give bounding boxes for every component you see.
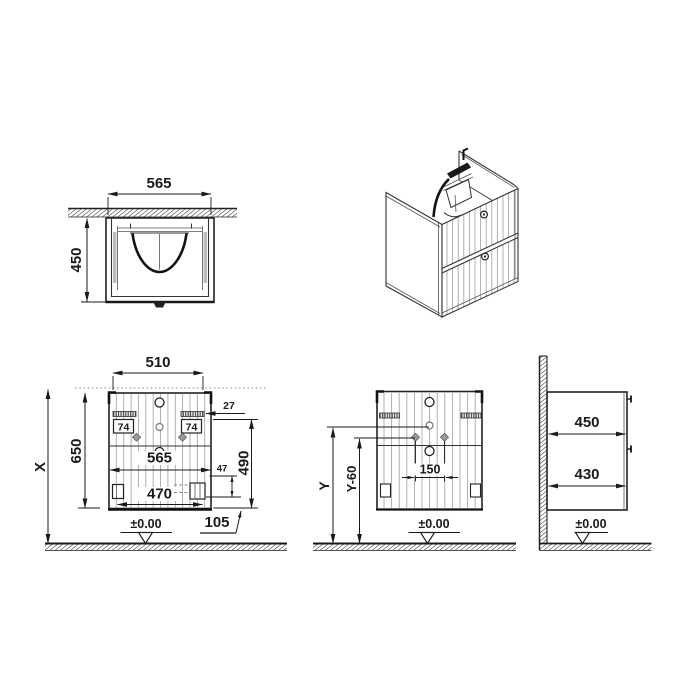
plan-view: 565 450 [68,175,237,308]
side-section-view: 450 430 ±0.00 [540,356,652,551]
drawer-slide-left [113,232,117,283]
datum-triangle-mount [421,533,435,544]
dim-cabinet-height: 650 [68,438,85,463]
dim-overall-width: 565 [147,450,172,467]
bracket-bottom-right-2 [471,484,481,497]
floor-hatch-mount [313,544,516,550]
dim-bottom-width: 470 [147,486,172,503]
fixing-hole-bottom-2 [425,447,434,456]
dim-depth-upper: 450 [574,414,599,431]
drain-mark [154,303,166,308]
bracket-bottom-left-2 [381,484,391,497]
mount-bracket-right-2 [461,413,481,418]
floor-hatch-front [45,544,287,550]
dim-bracket-offset: 27 [223,400,235,412]
dim-height-y60: Y-60 [344,466,359,493]
cabinet-plan-outline [106,218,214,302]
fixing-hole-mid-2 [426,422,433,429]
dim-bracket-height: 490 [236,450,253,475]
dim-total-height: X [32,462,49,472]
drawer-slide-right [204,232,208,283]
dim-hole-spacing: 150 [420,463,441,477]
mount-bracket-left-2 [380,413,400,418]
installation-heights-view: 150 Y Y-60 ±0.00 [313,392,516,551]
drain-bracket-right [190,483,205,499]
mount-bracket-left [113,412,136,417]
dim-plan-depth: 450 [68,247,85,272]
datum-level-front: ±0.00 [130,517,161,531]
bracket-bottom-left [113,485,124,499]
dim-bracket-right: 74 [186,422,198,434]
dim-drain-offset: 47 [217,464,228,475]
floor-hatch-side [540,544,652,551]
dim-depth-lower: 430 [574,466,599,483]
dim-top-width: 510 [145,354,170,371]
fixing-hole-mid [156,424,163,431]
dim-bracket-left: 74 [118,422,130,434]
drawing-svg: 565 450 [0,0,700,700]
vanity-technical-drawing: 565 450 [0,0,700,700]
fixing-hole-top-2 [425,398,434,407]
datum-level-mount: ±0.00 [418,517,449,531]
datum-level-side: ±0.00 [575,517,606,531]
datum-triangle-side [576,533,590,544]
wall-hatch-side [540,356,548,544]
isometric-view [386,149,518,318]
drain-pipe [434,179,450,217]
dim-height-y: Y [316,481,332,491]
wall-hatch [68,209,237,218]
fixing-hole-top [155,398,164,407]
datum-triangle-front [139,533,153,544]
front-elevation: X 650 510 74 74 27 565 470 [32,354,287,551]
dim-offset-right: 105 [204,514,229,531]
dim-plan-width: 565 [146,175,171,192]
mount-bracket-right [181,412,204,417]
cabinet-side-outline [547,392,627,510]
